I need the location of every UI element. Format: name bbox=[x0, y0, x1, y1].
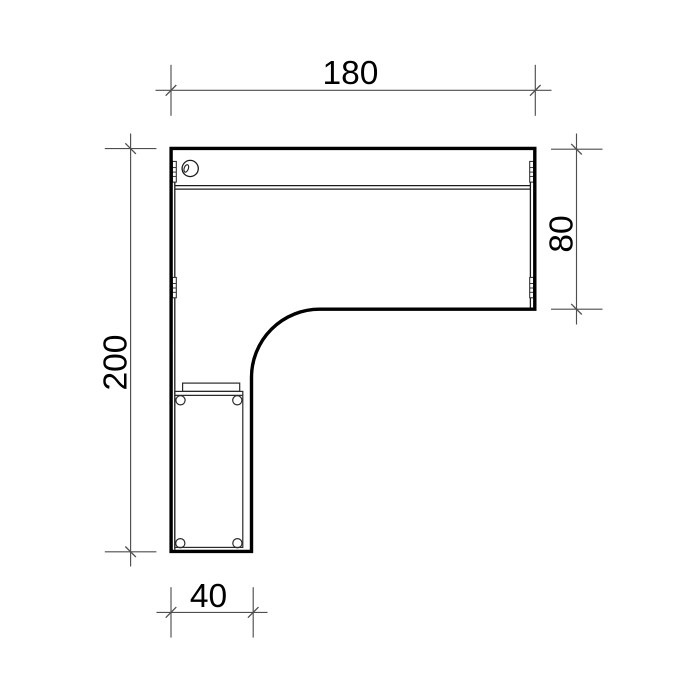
svg-text:200: 200 bbox=[97, 335, 134, 391]
svg-text:80: 80 bbox=[544, 215, 581, 252]
svg-text:180: 180 bbox=[323, 55, 379, 92]
svg-text:40: 40 bbox=[190, 578, 227, 615]
